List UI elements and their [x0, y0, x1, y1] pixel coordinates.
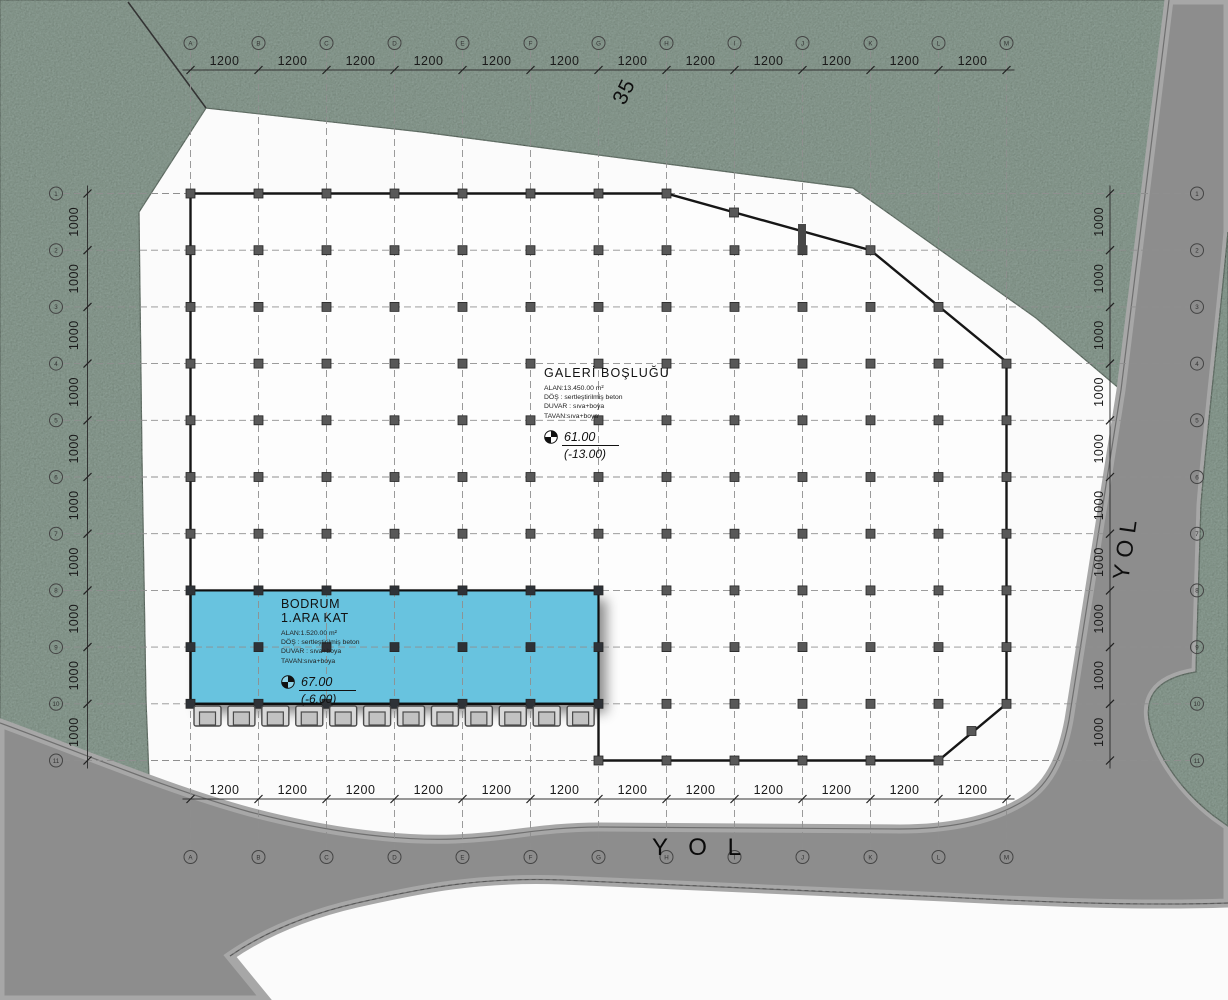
- axis-bubble-label: H: [664, 40, 668, 47]
- road-label-bottom: Y O L: [652, 834, 748, 862]
- column-marker: [662, 189, 671, 198]
- dim-label-bottom: 1200: [210, 783, 240, 797]
- level-value-below: (-6.00): [299, 691, 356, 706]
- column-marker: [458, 643, 467, 652]
- spec-line: TAVAN:sıva+boya: [281, 657, 360, 666]
- axis-bubble-label: 9: [54, 644, 58, 651]
- spec-line: DÖŞ : sertleştirilmiş beton: [281, 638, 360, 647]
- dim-label-right: 1000: [1092, 207, 1106, 237]
- dim-label-top: 1200: [346, 54, 376, 68]
- column-marker: [730, 586, 739, 595]
- column-marker: [730, 246, 739, 255]
- dim-label-top: 1200: [686, 54, 716, 68]
- window-well-inner: [301, 712, 317, 725]
- column-marker: [254, 359, 263, 368]
- column-marker: [934, 586, 943, 595]
- column-marker: [526, 302, 535, 311]
- basement-specs: ALAN:1.520.00 m² DÖŞ : sertleştirilmiş b…: [281, 629, 360, 666]
- axis-bubble-label: 1: [1195, 191, 1199, 198]
- column-marker: [186, 302, 195, 311]
- column-marker: [526, 416, 535, 425]
- dim-label-bottom: 1200: [414, 783, 444, 797]
- column-marker: [730, 302, 739, 311]
- column-marker: [662, 302, 671, 311]
- axis-bubble-label: 7: [54, 531, 58, 538]
- column-marker: [866, 586, 875, 595]
- dim-label-right: 1000: [1092, 604, 1106, 634]
- column-marker: [594, 643, 603, 652]
- column-marker: [1002, 586, 1011, 595]
- axis-bubble-label: J: [801, 40, 804, 47]
- column-marker: [662, 756, 671, 765]
- column-marker: [798, 473, 807, 482]
- axis-bubble-label: 10: [1194, 701, 1201, 708]
- dim-label-top: 1200: [482, 54, 512, 68]
- axis-bubble-label: 10: [53, 701, 60, 708]
- column-marker: [186, 473, 195, 482]
- spec-line: DÖŞ : sertleştirilmiş beton: [544, 393, 670, 402]
- column-marker: [866, 473, 875, 482]
- column-marker: [322, 416, 331, 425]
- column-marker: [322, 473, 331, 482]
- level-symbol-icon: [544, 430, 558, 444]
- column-marker: [526, 473, 535, 482]
- axis-bubble-label: D: [392, 854, 397, 861]
- column-marker: [322, 586, 331, 595]
- column-marker: [594, 756, 603, 765]
- window-well: [228, 706, 255, 726]
- spec-line: DUVAR : sıva+boya: [544, 402, 670, 411]
- dim-label-left: 1000: [67, 717, 81, 747]
- column-marker: [186, 359, 195, 368]
- column-marker: [798, 529, 807, 538]
- window-well: [398, 706, 425, 726]
- column-marker: [254, 643, 263, 652]
- column-marker: [798, 643, 807, 652]
- dim-label-left: 1000: [67, 547, 81, 577]
- basement-title-line2: 1.ARA KAT: [281, 611, 360, 625]
- column-marker: [866, 246, 875, 255]
- axis-bubble-label: G: [596, 40, 601, 47]
- dim-label-bottom: 1200: [618, 783, 648, 797]
- window-well: [533, 706, 560, 726]
- column-marker: [186, 416, 195, 425]
- axis-bubble-label: 7: [1195, 531, 1199, 538]
- column-marker: [186, 189, 195, 198]
- axis-bubble-label: D: [392, 40, 397, 47]
- dim-label-top: 1200: [550, 54, 580, 68]
- window-well: [330, 706, 357, 726]
- column-marker: [798, 416, 807, 425]
- dim-label-right: 1000: [1092, 661, 1106, 691]
- axis-bubble-label: M: [1004, 40, 1009, 47]
- column-marker: [866, 643, 875, 652]
- column-marker: [186, 586, 195, 595]
- dim-label-left: 1000: [67, 434, 81, 464]
- axis-bubble-label: 1: [54, 191, 58, 198]
- window-well: [262, 706, 289, 726]
- axis-bubble-label: 11: [53, 758, 60, 765]
- axis-bubble-label: 4: [54, 361, 58, 368]
- column-marker: [322, 359, 331, 368]
- dim-label-top: 1200: [210, 54, 240, 68]
- dim-label-right: 1000: [1092, 434, 1106, 464]
- column-marker: [798, 359, 807, 368]
- window-well-inner: [437, 712, 453, 725]
- column-marker: [1002, 473, 1011, 482]
- column-marker: [458, 473, 467, 482]
- dim-label-left: 1000: [67, 207, 81, 237]
- axis-bubble-label: F: [529, 40, 533, 47]
- column-marker: [390, 359, 399, 368]
- column-marker: [458, 586, 467, 595]
- dim-label-right: 1000: [1092, 490, 1106, 520]
- window-well: [194, 706, 221, 726]
- column-marker: [730, 473, 739, 482]
- dim-label-bottom: 1200: [346, 783, 376, 797]
- window-well: [567, 706, 594, 726]
- axis-bubble-label: 5: [1195, 418, 1199, 425]
- column-marker: [594, 246, 603, 255]
- dim-label-left: 1000: [67, 490, 81, 520]
- column-marker: [934, 756, 943, 765]
- column-marker: [798, 302, 807, 311]
- dim-label-right: 1000: [1092, 377, 1106, 407]
- column-marker: [390, 189, 399, 198]
- dim-label-bottom: 1200: [754, 783, 784, 797]
- column-marker: [594, 699, 603, 708]
- window-well-inner: [471, 712, 487, 725]
- column-marker: [934, 643, 943, 652]
- dim-label-bottom: 1200: [958, 783, 988, 797]
- window-well-inner: [335, 712, 351, 725]
- column-marker: [390, 529, 399, 538]
- dim-label-left: 1000: [67, 604, 81, 634]
- level-symbol-icon: [281, 675, 295, 689]
- dim-label-bottom: 1200: [822, 783, 852, 797]
- dim-label-left: 1000: [67, 661, 81, 691]
- column-marker: [730, 208, 739, 217]
- window-well-inner: [200, 712, 216, 725]
- column-marker: [967, 727, 976, 736]
- column-marker: [730, 359, 739, 368]
- column-marker: [866, 529, 875, 538]
- dim-label-bottom: 1200: [278, 783, 308, 797]
- dim-label-top: 1200: [754, 54, 784, 68]
- dim-label-top: 1200: [822, 54, 852, 68]
- window-well: [465, 706, 492, 726]
- column-marker: [458, 302, 467, 311]
- dim-label-left: 1000: [67, 320, 81, 350]
- dim-label-bottom: 1200: [550, 783, 580, 797]
- column-marker: [866, 756, 875, 765]
- column-marker: [322, 189, 331, 198]
- column-marker: [390, 586, 399, 595]
- column-marker: [458, 529, 467, 538]
- column-marker: [662, 699, 671, 708]
- column-marker: [254, 416, 263, 425]
- dim-label-right: 1000: [1092, 717, 1106, 747]
- axis-bubble-label: 6: [1195, 474, 1199, 481]
- spec-line: TAVAN:sıva+boya: [544, 412, 670, 421]
- axis-bubble-label: 2: [1195, 248, 1199, 255]
- axis-bubble-label: F: [529, 854, 533, 861]
- column-marker: [730, 699, 739, 708]
- column-marker: [390, 473, 399, 482]
- axis-bubble-label: C: [324, 854, 329, 861]
- level-value: 67.00: [299, 675, 356, 691]
- column-marker: [526, 359, 535, 368]
- axis-bubble-label: 11: [1194, 758, 1201, 765]
- column-marker: [526, 529, 535, 538]
- column-marker: [458, 246, 467, 255]
- window-well-inner: [267, 712, 283, 725]
- column-marker: [662, 586, 671, 595]
- column-marker: [1002, 359, 1011, 368]
- column-marker: [458, 416, 467, 425]
- column-marker: [458, 359, 467, 368]
- column-marker: [934, 359, 943, 368]
- site-plan-canvas: 1200120012001200120012001200120012001200…: [0, 0, 1228, 1000]
- column-marker: [254, 473, 263, 482]
- column-marker: [526, 643, 535, 652]
- axis-bubble-label: L: [937, 40, 941, 47]
- basement-level-marker: 67.00 (-6.00): [281, 675, 360, 706]
- site-plan-drawing: 1200120012001200120012001200120012001200…: [0, 0, 1228, 1000]
- column-marker: [458, 189, 467, 198]
- axis-bubble-label: B: [256, 854, 260, 861]
- basement-annotation: BODRUM 1.ARA KAT ALAN:1.520.00 m² DÖŞ : …: [281, 597, 360, 706]
- column-marker: [594, 189, 603, 198]
- axis-bubble-label: G: [596, 854, 601, 861]
- axis-bubble-label: C: [324, 40, 329, 47]
- column-marker: [254, 302, 263, 311]
- axis-bubble-label: 8: [54, 588, 58, 595]
- dim-label-bottom: 1200: [686, 783, 716, 797]
- window-well-inner: [573, 712, 589, 725]
- column-marker: [798, 756, 807, 765]
- column-marker: [934, 699, 943, 708]
- dim-label-right: 1000: [1092, 320, 1106, 350]
- axis-bubble-label: 2: [54, 248, 58, 255]
- dim-label-top: 1200: [278, 54, 308, 68]
- dim-label-top: 1200: [890, 54, 920, 68]
- dim-label-top: 1200: [414, 54, 444, 68]
- axis-bubble-label: L: [937, 854, 941, 861]
- window-well: [296, 706, 323, 726]
- column-marker: [526, 586, 535, 595]
- window-well: [431, 706, 458, 726]
- window-well-inner: [539, 712, 555, 725]
- column-marker: [594, 473, 603, 482]
- axis-bubble-label: I: [734, 40, 736, 47]
- dim-label-left: 1000: [67, 377, 81, 407]
- spec-line: ALAN:1.520.00 m²: [281, 629, 360, 638]
- window-well-inner: [403, 712, 419, 725]
- column-marker: [662, 246, 671, 255]
- column-marker: [730, 529, 739, 538]
- column-marker: [730, 643, 739, 652]
- column-marker: [662, 529, 671, 538]
- spec-line: DUVAR : sıva+boya: [281, 647, 360, 656]
- column-marker: [798, 699, 807, 708]
- column-marker: [662, 643, 671, 652]
- gallery-void-specs: ALAN:13.450.00 m² DÖŞ : sertleştirilmiş …: [544, 384, 670, 421]
- column-marker: [866, 359, 875, 368]
- column-marker: [322, 302, 331, 311]
- column-marker: [798, 586, 807, 595]
- window-well-inner: [505, 712, 521, 725]
- column-marker: [390, 302, 399, 311]
- column-marker: [1002, 416, 1011, 425]
- column-marker: [526, 246, 535, 255]
- column-marker: [934, 529, 943, 538]
- level-value-below: (-13.00): [562, 446, 619, 461]
- column-marker: [186, 529, 195, 538]
- axis-bubble-label: 5: [54, 418, 58, 425]
- column-marker: [186, 246, 195, 255]
- column-marker: [730, 416, 739, 425]
- dim-label-right: 1000: [1092, 264, 1106, 294]
- window-well-inner: [233, 712, 249, 725]
- wall-segment: [798, 224, 806, 254]
- column-marker: [730, 756, 739, 765]
- spec-line: ALAN:13.450.00 m²: [544, 384, 670, 393]
- axis-bubble-label: 3: [1195, 304, 1199, 311]
- column-marker: [594, 529, 603, 538]
- axis-bubble-label: 8: [1195, 588, 1199, 595]
- axis-bubble-label: 3: [54, 304, 58, 311]
- dim-label-top: 1200: [958, 54, 988, 68]
- window-well-inner: [369, 712, 385, 725]
- dim-label-top: 1200: [618, 54, 648, 68]
- column-marker: [594, 586, 603, 595]
- basement-title-line1: BODRUM: [281, 597, 360, 611]
- column-marker: [866, 416, 875, 425]
- column-marker: [594, 302, 603, 311]
- gallery-void-annotation: GALERİ BOŞLUĞU ALAN:13.450.00 m² DÖŞ : s…: [544, 366, 670, 461]
- axis-bubble-label: E: [460, 854, 464, 861]
- column-marker: [662, 473, 671, 482]
- column-marker: [934, 416, 943, 425]
- column-marker: [526, 189, 535, 198]
- column-marker: [1002, 643, 1011, 652]
- column-marker: [322, 246, 331, 255]
- window-well: [499, 706, 526, 726]
- level-value: 61.00: [562, 430, 619, 446]
- axis-bubble-label: J: [801, 854, 804, 861]
- column-marker: [390, 643, 399, 652]
- column-marker: [934, 473, 943, 482]
- column-marker: [390, 416, 399, 425]
- column-marker: [254, 586, 263, 595]
- dim-label-left: 1000: [67, 264, 81, 294]
- axis-bubble-label: B: [256, 40, 260, 47]
- axis-bubble-label: 9: [1195, 644, 1199, 651]
- axis-bubble-label: M: [1004, 854, 1009, 861]
- dim-label-right: 1000: [1092, 547, 1106, 577]
- column-marker: [254, 529, 263, 538]
- window-well: [364, 706, 391, 726]
- axis-bubble-label: 6: [54, 474, 58, 481]
- column-marker: [866, 302, 875, 311]
- axis-bubble-label: 4: [1195, 361, 1199, 368]
- gallery-void-title: GALERİ BOŞLUĞU: [544, 366, 670, 380]
- column-marker: [1002, 699, 1011, 708]
- column-marker: [390, 246, 399, 255]
- column-marker: [934, 302, 943, 311]
- column-marker: [254, 246, 263, 255]
- column-marker: [322, 529, 331, 538]
- axis-bubble-label: E: [460, 40, 464, 47]
- dim-label-bottom: 1200: [482, 783, 512, 797]
- dim-label-bottom: 1200: [890, 783, 920, 797]
- column-marker: [866, 699, 875, 708]
- column-marker: [254, 189, 263, 198]
- column-marker: [186, 643, 195, 652]
- column-marker: [1002, 529, 1011, 538]
- gallery-level-marker: 61.00 (-13.00): [544, 430, 670, 461]
